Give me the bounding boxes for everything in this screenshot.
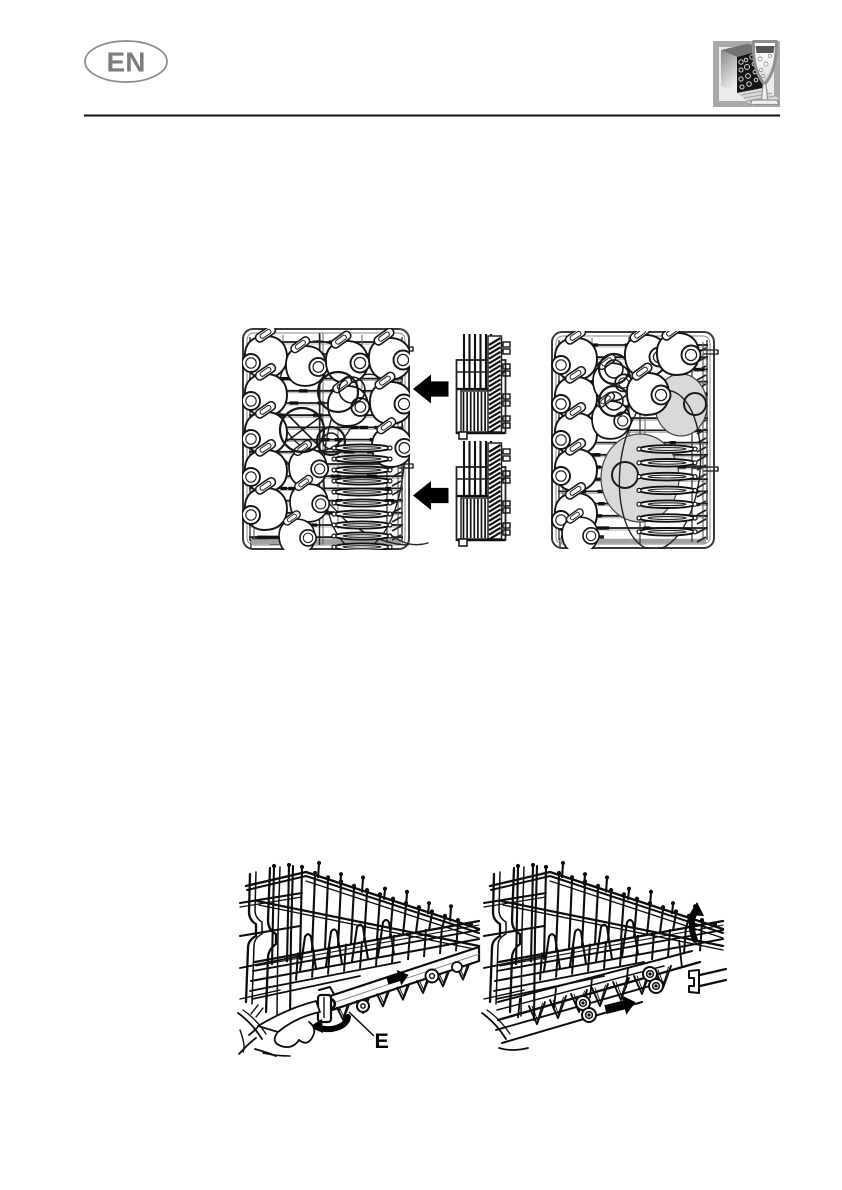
- svg-text:EN: EN: [107, 47, 146, 78]
- svg-text:E: E: [375, 1029, 389, 1053]
